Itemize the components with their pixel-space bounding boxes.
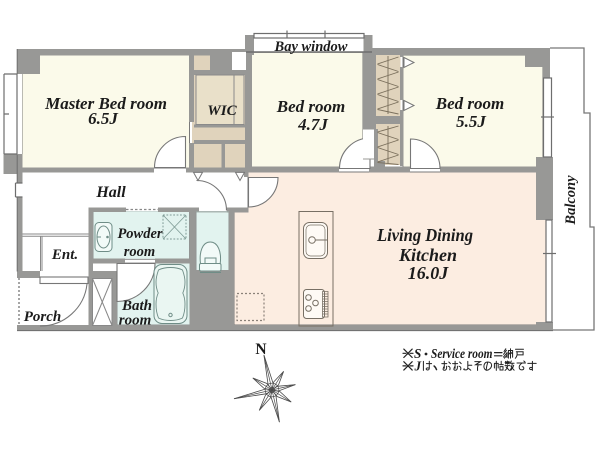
svg-text:Service room: Service room (431, 346, 493, 361)
svg-text:Hall: Hall (95, 184, 126, 201)
svg-text:Living Dining: Living Dining (376, 225, 473, 245)
svg-text:Powder: Powder (117, 226, 162, 242)
svg-text:4.7J: 4.7J (297, 115, 328, 134)
svg-text:J: J (414, 359, 422, 374)
svg-text:6.5J: 6.5J (88, 109, 118, 128)
svg-text:Kitchen: Kitchen (398, 245, 457, 265)
svg-text:room: room (124, 244, 155, 260)
svg-text:Bed room: Bed room (435, 94, 504, 113)
svg-text:WIC: WIC (207, 103, 237, 119)
svg-text:5.5J: 5.5J (456, 112, 486, 131)
svg-text:N: N (255, 341, 266, 358)
svg-text:Balcony: Balcony (563, 175, 579, 226)
svg-text:Porch: Porch (24, 309, 62, 325)
svg-text:room: room (119, 313, 152, 329)
svg-text:Bay window: Bay window (274, 39, 348, 55)
svg-text:Bed room: Bed room (276, 97, 345, 116)
svg-text:16.0J: 16.0J (408, 263, 450, 283)
svg-text:Ent.: Ent. (51, 247, 78, 263)
